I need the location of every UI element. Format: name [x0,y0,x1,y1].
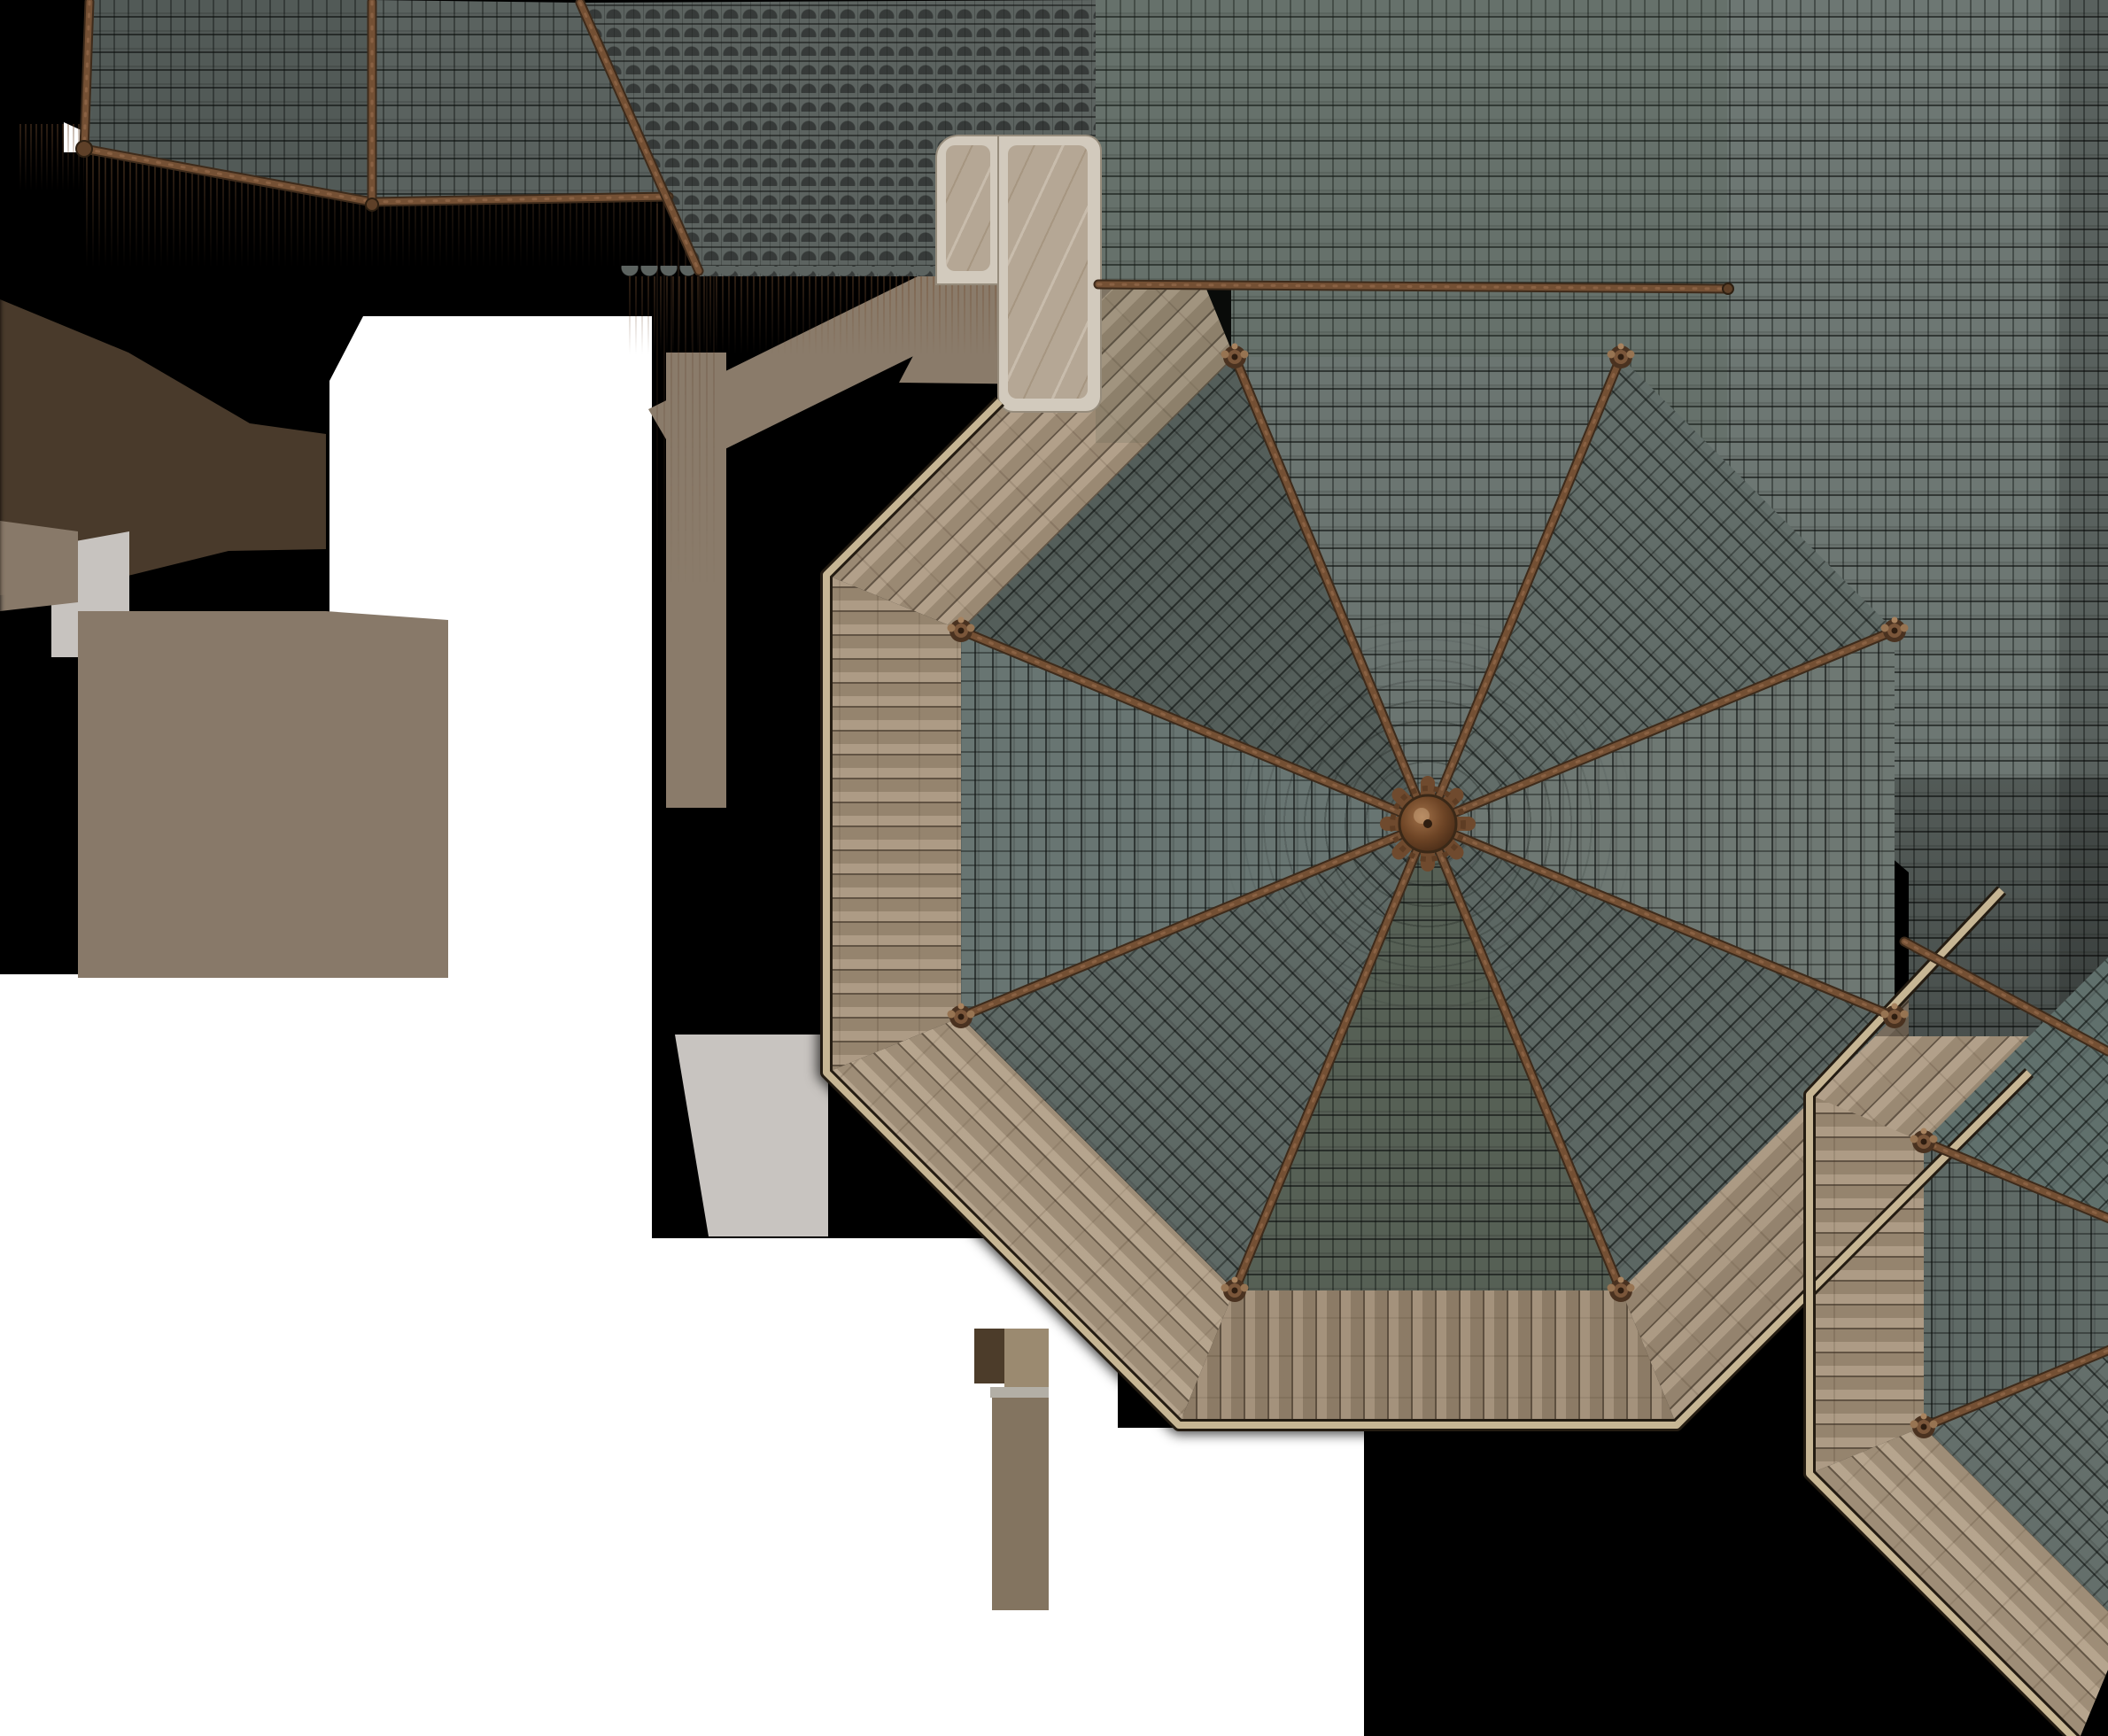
tower-center-finial [1380,776,1476,872]
finial-cap-r1-seam [366,198,378,211]
rooftop-map-canvas [0,0,2108,1736]
tower-roof-secondary-spoke-2 [1924,1142,2108,1284]
tower-roof-main-vertex-ornament-7 [1608,1277,1635,1303]
tower-roof-secondary-spoke-3 [1924,1284,2108,1427]
bar-end-nub-r3 [1723,283,1733,294]
finial-ball-r1 [76,141,92,157]
tower-roof-secondary-spoke-2-speckle [1924,1142,2108,1284]
ridge-bar-connector [1904,942,2108,1051]
tower-roof-main-vertex-ornament-3 [1221,344,1249,369]
ridge-bars-layer [0,0,2108,1736]
tower-roof-main-rim-board [826,401,2029,1425]
tower-roof-secondary-vertex-ornament-3 [1910,1414,1938,1439]
tower-roof-main-rim-outline [826,401,2029,1425]
tower-roof-main-vertex-ornament-6 [1221,1277,1249,1303]
tower-roof-main-vertex-ornament-5 [948,1004,975,1029]
tower-roof-secondary-spoke-2-outline [1924,1142,2108,1284]
tower-roof-main-vertex-ornament-2 [1608,344,1635,369]
tower-roof-secondary-spoke-3-outline [1924,1284,2108,1427]
tower-roof-secondary-spoke-3-speckle [1924,1284,2108,1427]
